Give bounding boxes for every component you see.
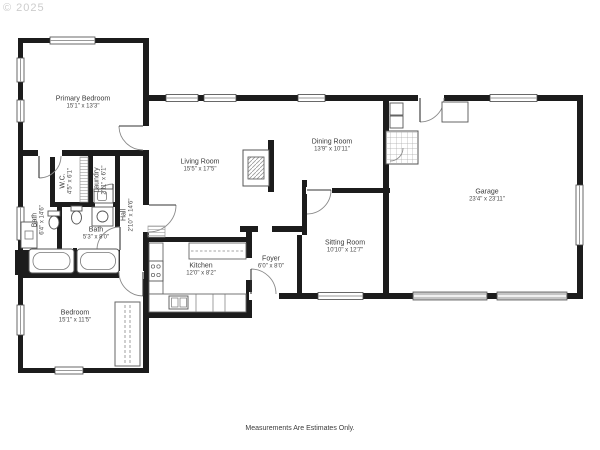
window (17, 58, 24, 82)
window (50, 37, 95, 44)
door-opening (38, 149, 62, 157)
garage-shelf-box (390, 116, 403, 128)
window (204, 95, 236, 102)
window (17, 100, 24, 122)
window (17, 305, 24, 335)
floor-plan-page: { "watermark": "© 2025", "footer": "Meas… (0, 0, 600, 450)
water-heater-closet (386, 131, 418, 164)
wall (240, 226, 307, 232)
bathtub (29, 249, 74, 273)
window (298, 95, 325, 102)
room-label-primary-bedroom: Primary Bedroom15'1" x 13'3" (56, 95, 110, 112)
door-primary-bedroom (119, 126, 143, 150)
bathroom-sink (92, 207, 113, 226)
door-front-entry (251, 269, 276, 294)
garage-door (413, 292, 487, 300)
room-label-sitting-room: Sitting Room10'10" x 12'7" (325, 239, 365, 256)
front-door-opening (249, 292, 279, 300)
fireplace (243, 150, 269, 186)
room-label-bath-left: Bath6'4" x 14'6" (31, 205, 48, 235)
toilet (48, 211, 60, 229)
bathtub (77, 249, 119, 273)
wall (297, 235, 302, 299)
copyright-watermark: © 2025 (3, 2, 45, 14)
garage-workbench (442, 102, 468, 122)
room-label-wc: W.C.4'5" x 6'1" (59, 168, 76, 194)
window (576, 185, 583, 245)
hall-shelves (148, 226, 165, 237)
disclaimer-text: Measurements Are Estimates Only. (0, 425, 600, 432)
room-label-dining-room: Dining Room13'9" x 10'11" (312, 138, 352, 155)
wall (383, 95, 389, 299)
room-label-living-room: Living Room15'5" x 17'5" (181, 158, 220, 175)
kitchen-bottom-counter (149, 294, 246, 312)
room-label-garage: Garage23'4" x 23'11" (469, 188, 505, 205)
kitchen-sink (169, 296, 188, 309)
window (55, 367, 83, 374)
door-opening (418, 94, 444, 102)
bedroom-closet (115, 302, 140, 366)
room-label-laundry: Laundry2'11" x 6'1" (93, 165, 110, 194)
room-label-foyer: Foyer6'0" x 8'0" (258, 255, 284, 272)
wall (143, 312, 252, 318)
door-opening (258, 225, 272, 233)
wall (18, 150, 149, 156)
garage-shelf-box (390, 103, 403, 115)
room-label-hall: Hall2'10" x 14'6" (120, 199, 137, 232)
toilet (71, 206, 82, 224)
wall (50, 152, 55, 207)
wc-closet-shelves (80, 157, 88, 202)
room-label-bath-hall: Bath5'3" x 8'0" (83, 226, 109, 243)
wall (143, 237, 252, 242)
room-label-kitchen: Kitchen12'0" x 8'2" (186, 262, 216, 279)
window (318, 293, 363, 300)
door-opening (142, 126, 150, 150)
window (166, 95, 198, 102)
window (490, 95, 537, 102)
room-label-bedroom: Bedroom15'1" x 11'5" (59, 309, 91, 326)
door-opening (119, 271, 144, 279)
stove (149, 261, 163, 281)
garage-door (497, 292, 567, 300)
kitchen-upper-counter (189, 243, 246, 259)
